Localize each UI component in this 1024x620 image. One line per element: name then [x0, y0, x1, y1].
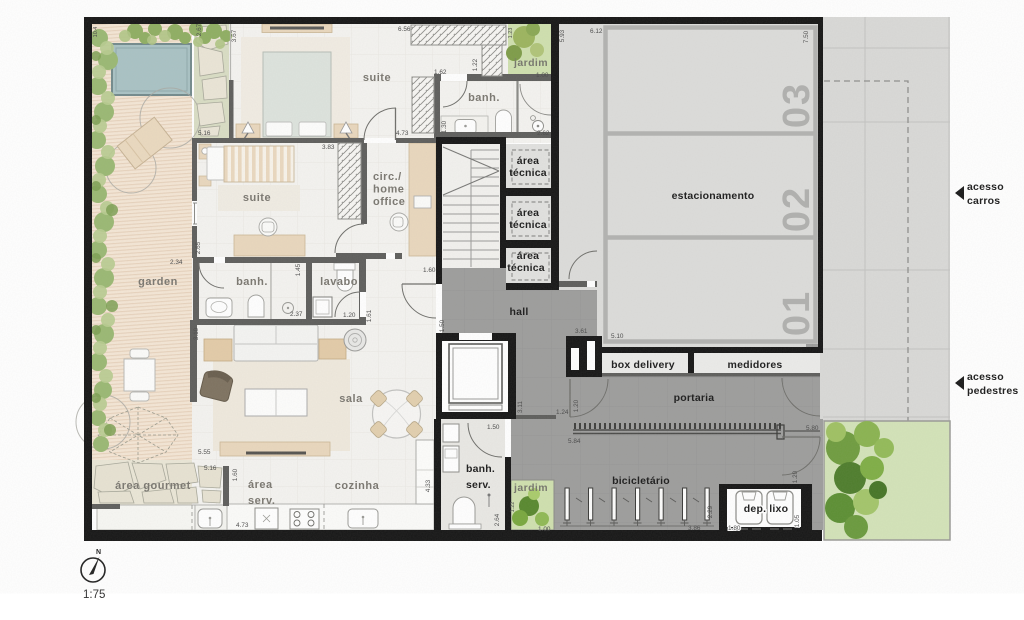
svg-text:1:75: 1:75 — [83, 589, 105, 601]
svg-text:pedestres: pedestres — [967, 385, 1018, 397]
svg-text:carros: carros — [967, 195, 1000, 207]
svg-text:acesso: acesso — [967, 371, 1004, 383]
svg-text:N: N — [96, 549, 101, 556]
svg-text:acesso: acesso — [967, 181, 1004, 193]
